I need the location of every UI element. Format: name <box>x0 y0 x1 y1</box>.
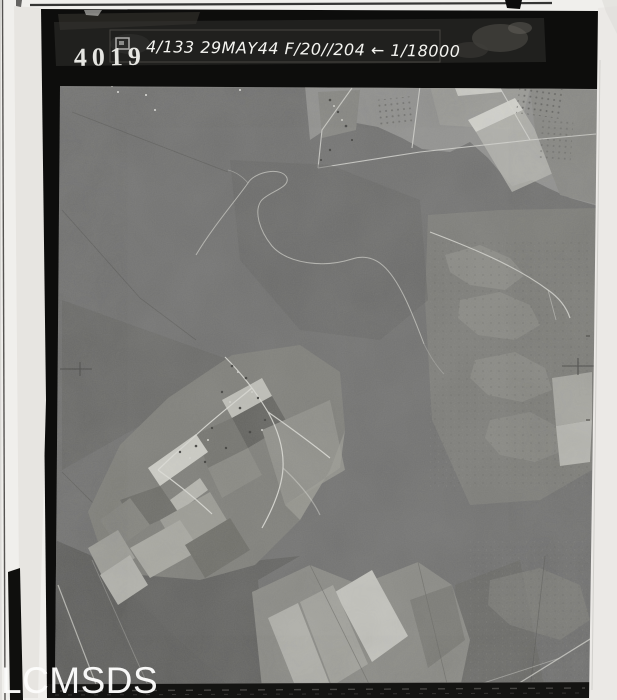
aerial-photo <box>50 80 605 700</box>
archive-watermark: LCMSDS <box>1 660 158 700</box>
photo-id-stamp: 4019 <box>74 42 146 72</box>
scanned-aerial-photo-page: 4019 4/133 29MAY44 F/20//204 ← 1/18000 L… <box>0 0 617 700</box>
photo-grain <box>50 80 605 695</box>
